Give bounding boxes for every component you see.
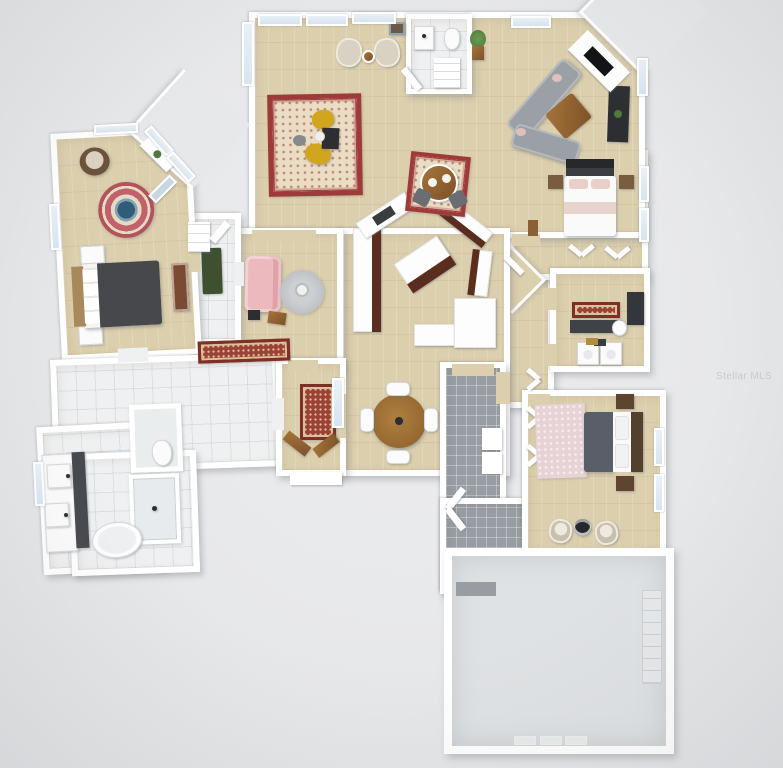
washer	[577, 342, 599, 365]
round-black-table	[574, 519, 591, 536]
bedroom3-nightstand	[616, 394, 634, 409]
blush-pillow	[516, 128, 526, 136]
hall-cabinet	[482, 428, 502, 450]
breakfast-bar	[454, 298, 496, 348]
nightstand	[80, 245, 105, 264]
green-bath-mat	[201, 248, 223, 295]
bath2-runner	[572, 302, 620, 318]
bedroom3-nightstand	[616, 476, 634, 491]
floor-plan-render: Stellar MLS	[0, 0, 783, 768]
shower-drain	[152, 506, 157, 511]
bedroom2-shelf	[528, 220, 538, 236]
sink-faucet	[66, 474, 70, 478]
round-side-table	[362, 50, 375, 63]
armoire	[171, 263, 189, 312]
hall-runner	[198, 338, 291, 363]
nightstand	[78, 325, 103, 345]
opening-sitting-den	[252, 230, 316, 242]
french-door	[332, 378, 344, 428]
laundry-basket-items	[586, 338, 598, 345]
bedroom2-blanket	[564, 202, 616, 214]
garage-floor-threshold	[540, 736, 562, 745]
gray-pouf	[293, 135, 306, 146]
window	[258, 14, 302, 26]
window	[352, 12, 396, 24]
bedroom3-duvet	[584, 412, 613, 472]
bedroom3-pillow	[615, 416, 629, 440]
opening-hall-bath2	[544, 288, 556, 310]
stellar-mls-watermark: Stellar MLS	[716, 371, 772, 382]
opening-entry-bath	[272, 398, 284, 430]
den-accent-table	[267, 311, 286, 325]
table-centerpiece	[395, 417, 403, 425]
dining-chair	[386, 450, 410, 464]
opening-hall-laundry	[544, 344, 556, 366]
dining-chair	[424, 408, 438, 432]
papasan-chair	[79, 147, 110, 177]
bedroom2-nightstand	[619, 175, 634, 189]
window	[242, 22, 254, 86]
kitchen-counter-left	[353, 228, 381, 332]
opening-kitchen-mudroom	[452, 364, 494, 376]
bedroom3-headboard	[630, 412, 643, 472]
garage-floor-threshold	[514, 736, 536, 745]
garage-floor-threshold	[565, 736, 587, 745]
opening-mudroom-hallright	[496, 372, 510, 404]
bedroom3-rug	[535, 403, 588, 479]
den-accent-table	[248, 310, 260, 320]
window	[654, 474, 664, 512]
dining-chair	[360, 408, 374, 432]
front-door-step	[290, 472, 342, 485]
den-side-table	[295, 283, 309, 297]
plant-stand	[472, 46, 484, 60]
opening-hall-entry	[288, 360, 318, 372]
powder-ladder-shelf	[434, 58, 460, 88]
window	[639, 208, 649, 242]
cabinet-face	[372, 228, 381, 332]
bedroom2-pillow	[591, 179, 610, 189]
place-setting	[428, 178, 437, 187]
garage-storage-shelves	[642, 590, 662, 684]
console-plant	[614, 110, 622, 118]
pink-loveseat	[245, 256, 282, 313]
place-setting	[442, 174, 451, 183]
bath2-shower	[627, 292, 644, 325]
window	[639, 166, 649, 202]
bath2-toilet	[612, 320, 627, 336]
primary-duvet	[97, 260, 162, 327]
window	[306, 14, 348, 26]
sink-faucet	[64, 513, 68, 517]
powder-toilet	[444, 28, 460, 50]
dining-table	[372, 394, 426, 448]
room-garage	[444, 548, 674, 754]
dining-chair	[386, 382, 410, 396]
round-bedroom-rug	[97, 181, 156, 240]
hall-cabinet	[482, 452, 502, 474]
opening-mudroom-garage	[456, 582, 496, 596]
bedroom2-nightstand	[548, 175, 563, 189]
window	[637, 58, 648, 96]
bedroom3-pillow	[615, 444, 629, 468]
leaning-mirror	[148, 175, 177, 204]
dryer	[600, 342, 622, 365]
opening-vestibule-den	[234, 262, 244, 286]
bedroom2-pillow	[569, 179, 588, 189]
powder-vanity-sink	[414, 26, 434, 50]
entry-runner	[300, 384, 336, 440]
window	[654, 428, 664, 466]
round-white-table	[314, 131, 325, 142]
powder-faucet	[422, 34, 426, 38]
blush-pillow	[552, 74, 562, 82]
window	[511, 16, 551, 28]
